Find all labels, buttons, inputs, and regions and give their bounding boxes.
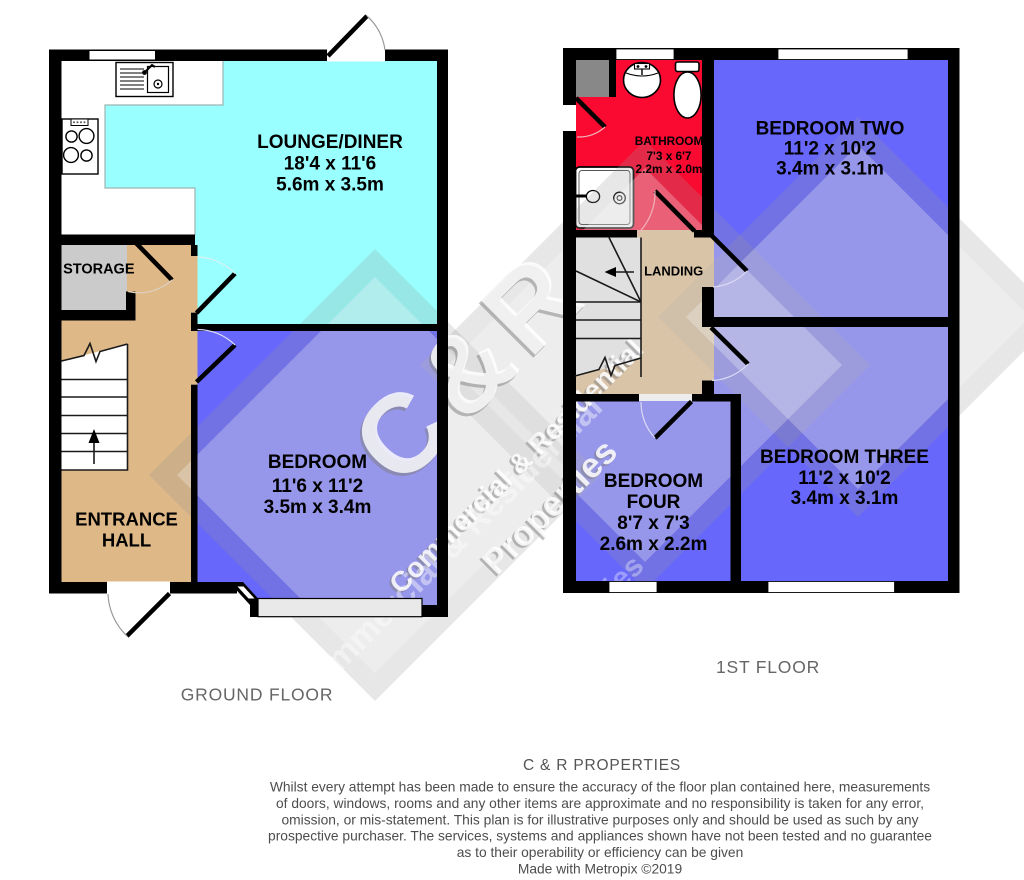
svg-text:BEDROOM: BEDROOM [604,471,703,492]
svg-text:BEDROOM: BEDROOM [268,452,367,473]
svg-text:STORAGE: STORAGE [63,262,135,278]
svg-text:Whilst every attempt has been: Whilst every attempt has been made to en… [270,780,930,795]
svg-text:GROUND FLOOR: GROUND FLOOR [181,684,334,704]
svg-text:11'6 x 11'2: 11'6 x 11'2 [272,476,363,497]
svg-text:BATHROOM: BATHROOM [635,134,704,148]
svg-text:LOUNGE/DINER: LOUNGE/DINER [257,132,403,153]
svg-text:as to their operability or eff: as to their operability or efficiency ca… [457,845,744,860]
svg-text:7'3 x 6'7: 7'3 x 6'7 [647,149,692,163]
svg-text:LANDING: LANDING [644,263,703,278]
svg-text:3.4m x 3.1m: 3.4m x 3.1m [791,488,899,509]
svg-text:FOUR: FOUR [627,492,681,513]
svg-text:omission, or mis-statement. Th: omission, or mis-statement. This plan is… [281,813,918,828]
svg-text:1ST FLOOR: 1ST FLOOR [716,657,820,677]
svg-text:3.5m x 3.4m: 3.5m x 3.4m [264,497,372,518]
svg-text:ENTRANCE: ENTRANCE [75,508,178,529]
svg-text:BEDROOM THREE: BEDROOM THREE [760,447,929,468]
svg-text:BEDROOM TWO: BEDROOM TWO [756,119,905,140]
svg-text:Made with Metropix ©2019: Made with Metropix ©2019 [518,861,683,876]
svg-text:HALL: HALL [102,530,151,551]
svg-text:2.2m x 2.0m: 2.2m x 2.0m [636,162,703,176]
svg-text:5.6m x 3.5m: 5.6m x 3.5m [276,174,384,195]
svg-text:2.6m x 2.2m: 2.6m x 2.2m [600,534,708,555]
svg-text:8'7 x 7'3: 8'7 x 7'3 [617,513,689,534]
svg-text:prospective purchaser. The ser: prospective purchaser. The services, sys… [268,829,932,844]
svg-text:3.4m x 3.1m: 3.4m x 3.1m [776,158,884,179]
svg-text:of doors, windows, rooms and a: of doors, windows, rooms and any other i… [276,796,924,811]
svg-text:18'4 x 11'6: 18'4 x 11'6 [284,153,377,174]
svg-text:C & R PROPERTIES: C & R PROPERTIES [523,757,681,774]
svg-text:11'2 x 10'2: 11'2 x 10'2 [798,468,891,489]
svg-text:11'2 x 10'2: 11'2 x 10'2 [784,139,877,160]
